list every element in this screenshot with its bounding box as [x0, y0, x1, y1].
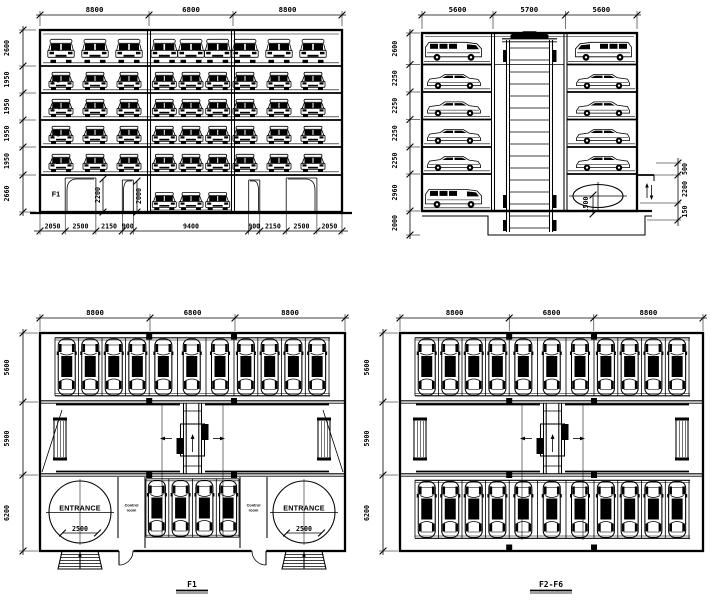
dim-label: 2050: [45, 223, 61, 231]
dimension-chain-bottom: 2050 2500 2150 900 9400 900 2150 2500 20…: [34, 214, 348, 235]
dim-label: 1950: [3, 126, 11, 142]
dim-label: 1950: [3, 153, 11, 169]
dim-label: 2600: [3, 40, 11, 56]
floor-plan-f1-view: 8800 6800 8800 5600 5900 6200: [0, 290, 360, 605]
dim-label: 5700: [520, 5, 538, 14]
car-row: [49, 99, 325, 117]
dim-label: 2050: [321, 223, 337, 231]
down-arrow-icon: [650, 196, 654, 201]
floor-label: F1: [52, 190, 60, 199]
dim-label: 8800: [281, 308, 299, 317]
dim-label: 5600: [363, 360, 371, 376]
dim-label: 8800: [279, 5, 297, 14]
dim-label: 8800: [639, 308, 657, 317]
dim-label: 2200: [681, 181, 689, 197]
lift-shaft: [502, 31, 557, 232]
dimension-chain-left: 5600 5900 6200: [3, 329, 38, 555]
dim-label: 6800: [184, 308, 202, 317]
control-room: Control room: [118, 477, 145, 548]
dim-label: 6800: [543, 308, 561, 317]
dim-label: 8800: [446, 308, 464, 317]
louver-vent: [675, 418, 689, 461]
dim-label: 2660: [3, 186, 11, 202]
dim-label: 5600: [592, 5, 610, 14]
dim-label: 900: [122, 223, 134, 231]
view-title: F1: [176, 580, 208, 593]
car-row: [146, 479, 239, 537]
dimension-pit: 1500: [582, 192, 596, 218]
control-room: Control room: [240, 477, 267, 548]
dimension-door-heights: 2200 2000: [94, 176, 143, 216]
front-elevation-view: 8800 6800 8800 2600 1950 1950 1950 1950 …: [0, 0, 360, 250]
entrance-label: ENTRANCE: [59, 504, 101, 513]
door-swing: [119, 549, 134, 565]
car-row: [49, 154, 325, 172]
parking-system-drawing: 8800 6800 8800 2600 1950 1950 1950 1950 …: [0, 0, 715, 605]
control-room-label: room: [127, 508, 137, 513]
dimension-chain-top: 5600 5700 5600: [418, 5, 641, 29]
dim-label: 8800: [86, 5, 104, 14]
dim-label: 900: [248, 223, 260, 231]
pit-outline: [422, 211, 652, 235]
dim-label: 6200: [363, 505, 371, 521]
dim-label: 150: [681, 206, 689, 218]
dimension-chain-left: 2600 1950 1950 1950 1950 2660: [3, 26, 36, 216]
door-swing: [252, 549, 267, 565]
dim-label: 5900: [3, 431, 11, 447]
dimension-chain-top: 8800 6800 8800: [36, 308, 349, 331]
car-row: [576, 42, 632, 171]
dim-label: 2150: [101, 223, 117, 231]
dim-label: 2200: [94, 187, 102, 203]
car-row: [415, 480, 690, 538]
entrance-turntable: ENTRANCE 2500: [270, 479, 338, 545]
car-row: [152, 193, 229, 211]
dim-label: 2250: [391, 153, 399, 169]
dim-label: 2250: [391, 125, 399, 141]
turntable: [569, 182, 627, 211]
side-section-view: 5600 5700 5600 2600 2250 2250 2250 2250 …: [360, 0, 715, 260]
dim-label: 2960: [391, 185, 399, 201]
dimension-chain-top: 8800 6800 8800: [396, 308, 707, 331]
louver-vent: [317, 418, 331, 461]
car-row: [49, 72, 325, 90]
car-row: [415, 338, 690, 396]
car-row: [48, 39, 326, 63]
dim-label: 2250: [391, 70, 399, 86]
louver-vent: [53, 418, 67, 461]
view-title: F2-F6: [530, 580, 572, 593]
view-title-label: F2-F6: [539, 580, 563, 589]
up-arrow-icon: [645, 183, 649, 188]
dim-label: 2000: [391, 215, 399, 231]
car-row: [49, 126, 325, 144]
view-title-label: F1: [187, 580, 197, 589]
dim-label: 2150: [265, 223, 281, 231]
dim-label: 1500: [582, 197, 590, 213]
car-row: [55, 338, 330, 396]
dim-label: 1950: [3, 72, 11, 88]
dim-label: 1950: [3, 99, 11, 115]
dimension-chain-left: 5600 5900 6200: [363, 329, 398, 555]
entrance-stairs: [282, 552, 326, 570]
dim-label: 2250: [391, 98, 399, 114]
dim-label: 2500: [296, 525, 312, 533]
louver-vent: [413, 418, 427, 461]
dim-label: 2500: [294, 223, 310, 231]
entrance-turntable: ENTRANCE 2500: [46, 479, 114, 545]
dimension-chain-top: 8800 6800 8800: [36, 5, 346, 26]
annex: [637, 175, 654, 200]
entrance-stairs: [58, 552, 102, 570]
dim-label: 6800: [182, 5, 200, 14]
dim-label: 9400: [183, 223, 199, 231]
car-lift: [520, 403, 585, 474]
dim-label: 500: [681, 163, 689, 175]
dim-label: 2500: [73, 223, 89, 231]
dim-label: 5600: [449, 5, 467, 14]
car-lift: [160, 403, 225, 474]
dimension-chain-left: 2600 2250 2250 2250 2250 2960 2000: [391, 29, 420, 239]
floor-plan-f2-f6-view: 8800 6800 8800 5600 5900 6200: [360, 290, 715, 605]
dim-label: 2000: [135, 188, 143, 204]
dim-label: 8800: [86, 308, 104, 317]
entrance-label: ENTRANCE: [283, 504, 325, 513]
dim-label: 2600: [391, 41, 399, 57]
dim-label: 5600: [3, 360, 11, 376]
car-row: [426, 42, 482, 207]
dim-label: 2500: [72, 525, 88, 533]
control-room-label: room: [249, 508, 259, 513]
dim-label: 5900: [363, 431, 371, 447]
door-opening: [249, 178, 317, 212]
dim-label: 6200: [3, 505, 11, 521]
